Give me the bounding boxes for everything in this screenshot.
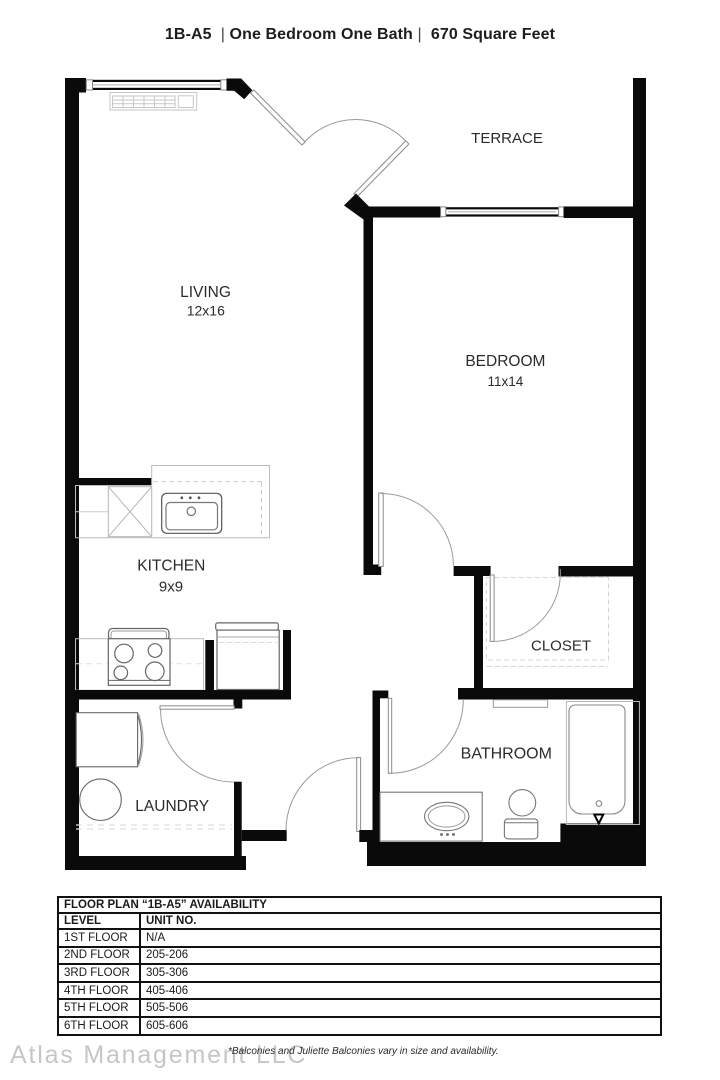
svg-text:LAUNDRY: LAUNDRY: [135, 798, 209, 815]
svg-text:KITCHEN: KITCHEN: [137, 557, 205, 574]
svg-text:TERRACE: TERRACE: [471, 130, 543, 147]
svg-text:11x14: 11x14: [488, 374, 524, 389]
svg-text:LIVING: LIVING: [180, 284, 231, 301]
svg-text:BEDROOM: BEDROOM: [465, 353, 545, 370]
svg-text:9x9: 9x9: [159, 579, 183, 596]
svg-text:12x16: 12x16: [187, 303, 225, 319]
svg-text:CLOSET: CLOSET: [531, 638, 591, 655]
svg-text:BATHROOM: BATHROOM: [461, 746, 552, 763]
